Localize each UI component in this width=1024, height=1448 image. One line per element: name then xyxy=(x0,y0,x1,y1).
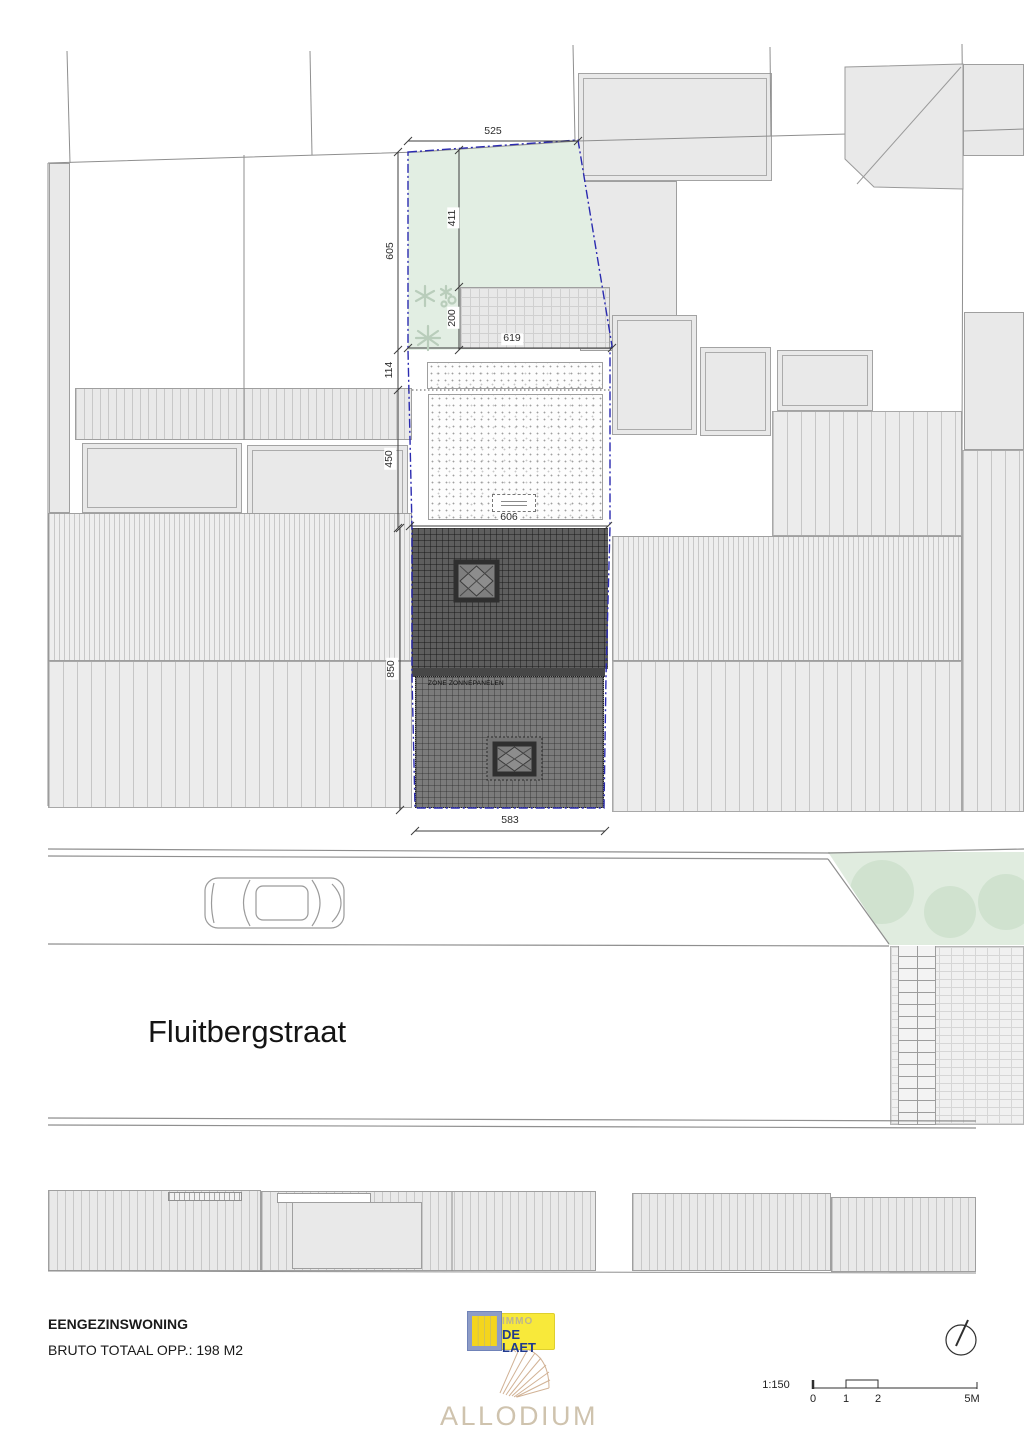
scale-tick-5m: 5M xyxy=(964,1394,979,1405)
dim-label-garden-width: 525 xyxy=(482,126,504,138)
project-type-label: EENGEZINSWONING xyxy=(48,1316,188,1332)
skylight-icon xyxy=(487,737,542,780)
north-arrow-icon xyxy=(946,1320,976,1355)
hip-roof-building xyxy=(845,64,963,189)
logo-de-laet-text: DE LAET xyxy=(502,1328,554,1354)
car-icon xyxy=(205,878,344,928)
street-name-label: Fluitbergstraat xyxy=(148,1014,346,1050)
logo-building-icon xyxy=(467,1311,502,1351)
street-lines xyxy=(48,849,1024,1128)
dim-label-rear-depth: 850 xyxy=(386,658,398,680)
dim-label-garden-height: 605 xyxy=(385,240,397,262)
dimension-lines xyxy=(394,137,616,835)
logo-allodium-text: ALLODIUM xyxy=(440,1401,598,1432)
dim-label-roof-depth: 450 xyxy=(384,448,396,470)
dim-label-width-terrace: 619 xyxy=(501,333,523,345)
scale-bar xyxy=(813,1380,977,1389)
dim-label-terrace: 200 xyxy=(447,307,459,329)
skylight-icon xyxy=(456,562,497,600)
dim-label-strip: 114 xyxy=(384,360,396,381)
plot-boundary xyxy=(408,140,612,808)
parcel-lines xyxy=(48,44,1024,1273)
logo-windows xyxy=(472,1316,497,1346)
site-plan-page: ZONE ZONNEPANELEN xyxy=(0,0,1024,1448)
scale-tick-2: 2 xyxy=(875,1394,881,1405)
scale-tick-0: 0 xyxy=(810,1394,816,1405)
scale-ratio-label: 1:150 xyxy=(762,1380,790,1391)
scale-tick-1: 1 xyxy=(843,1394,849,1405)
logo-immo-text: IMMO xyxy=(502,1317,554,1327)
logo-immo-de-laet: IMMO DE LAET xyxy=(495,1313,555,1350)
linework-layer xyxy=(0,0,1024,1448)
dim-label-roof-width: 606 xyxy=(498,512,520,524)
gross-area-label: BRUTO TOTAAL OPP.: 198 M2 xyxy=(48,1342,243,1358)
dim-label-garden-inner: 411 xyxy=(447,208,459,229)
dim-label-facade-width: 583 xyxy=(499,815,521,827)
